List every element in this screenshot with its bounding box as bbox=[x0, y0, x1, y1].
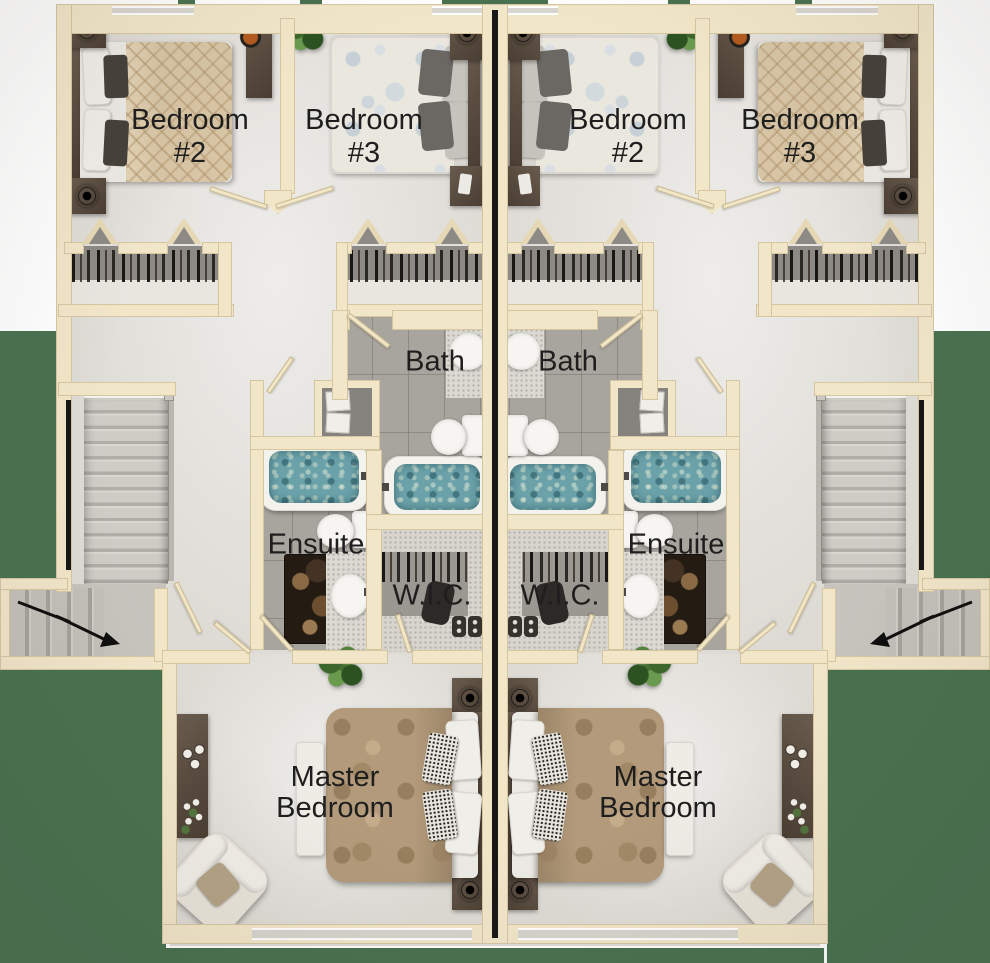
lamp-icon bbox=[78, 187, 96, 205]
ensuite-wall bbox=[250, 436, 380, 450]
closet-wall bbox=[58, 304, 234, 317]
toilet-bowl bbox=[431, 419, 466, 455]
accent-pillow-dark bbox=[418, 48, 455, 97]
exterior-wall bbox=[0, 656, 172, 670]
closet-shelf bbox=[70, 280, 218, 306]
stairwell-wall bbox=[58, 382, 176, 396]
sink bbox=[621, 574, 659, 618]
stair-direction-arrow bbox=[14, 592, 124, 656]
stair-railing bbox=[816, 393, 822, 581]
phone bbox=[518, 173, 533, 194]
master-wall bbox=[292, 650, 388, 664]
towels bbox=[325, 412, 350, 433]
ensuite-wall bbox=[610, 436, 740, 450]
bath-wall bbox=[332, 310, 348, 400]
closet-wall bbox=[906, 242, 926, 254]
room-label-bedroom3: Bedroom#3 bbox=[741, 104, 859, 170]
patio-window bbox=[252, 928, 472, 940]
shoes bbox=[452, 616, 466, 637]
flower-vase bbox=[178, 794, 208, 836]
closet-clothes bbox=[500, 250, 640, 282]
lamp-icon bbox=[461, 689, 479, 707]
bedroom-divider-wall bbox=[280, 18, 295, 194]
bedroom-divider-wall bbox=[695, 18, 710, 194]
nightstand bbox=[450, 166, 484, 206]
bath-wall bbox=[495, 310, 598, 330]
shoes bbox=[468, 616, 482, 637]
lamp-icon bbox=[461, 881, 479, 899]
lamp-icon bbox=[511, 881, 529, 899]
closet-wall bbox=[758, 242, 772, 317]
staircase bbox=[84, 396, 168, 584]
room-label-bath: Bath bbox=[405, 346, 465, 379]
wic-clothes bbox=[382, 552, 468, 582]
party-wall-line bbox=[492, 10, 498, 938]
flower-vase bbox=[782, 794, 812, 836]
bath-wic-wall bbox=[366, 514, 495, 530]
exterior-wall bbox=[818, 656, 990, 670]
room-label-ensuite: Ensuite bbox=[628, 529, 725, 562]
room-label-wic: W.I.C. bbox=[521, 580, 600, 613]
master-wall bbox=[740, 650, 828, 664]
staircase bbox=[822, 396, 906, 584]
bath-wall bbox=[642, 310, 658, 400]
ensuite-wall bbox=[726, 380, 740, 650]
wic-clothes bbox=[522, 552, 608, 582]
nightstand bbox=[506, 166, 540, 206]
room-label-wic: W.I.C. bbox=[393, 580, 472, 613]
bath-wic-wall bbox=[495, 514, 624, 530]
closet-wall bbox=[554, 242, 604, 254]
ensuite-wall bbox=[250, 380, 264, 650]
lamp-icon bbox=[511, 689, 529, 707]
accent-pillow bbox=[103, 119, 129, 166]
bath-wall bbox=[392, 310, 495, 330]
accent-pillow bbox=[861, 119, 887, 166]
stair-railing bbox=[168, 393, 174, 581]
candles bbox=[180, 744, 210, 772]
accent-pillow bbox=[103, 55, 128, 99]
patio-window bbox=[518, 928, 738, 940]
shoes bbox=[508, 616, 522, 637]
accent-pillow bbox=[861, 55, 886, 99]
exterior-wall bbox=[0, 578, 68, 590]
closet-wall bbox=[218, 242, 232, 317]
closet-wall bbox=[642, 242, 654, 317]
stair-direction-arrow bbox=[866, 592, 976, 656]
room-label-bedroom2: Bedroom#2 bbox=[569, 104, 687, 170]
ensuite-wic-wall bbox=[366, 450, 382, 650]
closet-clothes bbox=[774, 250, 918, 282]
towels bbox=[639, 412, 664, 433]
room-label-master: MasterBedroom bbox=[599, 762, 717, 824]
floor-plan: Bedroom#2 Bedroom#3 Bedroom#2 Bedroom#3 … bbox=[0, 0, 990, 963]
lamp-icon bbox=[894, 187, 912, 205]
phone bbox=[458, 173, 473, 194]
master-wall bbox=[602, 650, 698, 664]
bathtub-water bbox=[394, 464, 480, 510]
candles bbox=[780, 744, 810, 772]
ensuite-wic-wall bbox=[608, 450, 624, 650]
closet-clothes bbox=[350, 250, 490, 282]
sink bbox=[331, 574, 369, 618]
nightstand bbox=[884, 178, 922, 214]
window bbox=[112, 6, 194, 15]
closet-wall bbox=[64, 242, 84, 254]
closet-wall bbox=[822, 242, 872, 254]
bathtub-water bbox=[269, 451, 359, 503]
exterior-wall bbox=[922, 578, 990, 590]
closet-clothes bbox=[72, 250, 216, 282]
exterior-wall bbox=[813, 654, 828, 944]
closet-shelf bbox=[772, 280, 920, 306]
closet-wall bbox=[118, 242, 168, 254]
accent-pillow-dark bbox=[536, 100, 573, 151]
accent-pillow-dark bbox=[418, 100, 455, 151]
closet-shelf bbox=[496, 280, 642, 306]
closet-wall bbox=[336, 242, 348, 317]
toilet-bowl bbox=[524, 419, 559, 455]
bathtub-water bbox=[510, 464, 596, 510]
exterior-wall bbox=[162, 654, 177, 944]
closet-shelf bbox=[348, 280, 494, 306]
room-label-bedroom2: Bedroom#2 bbox=[131, 104, 249, 170]
nightstand bbox=[68, 178, 106, 214]
bathtub-water bbox=[631, 451, 721, 503]
closet-wall bbox=[386, 242, 436, 254]
room-label-master: MasterBedroom bbox=[276, 762, 394, 824]
sink bbox=[503, 333, 540, 370]
room-label-bath: Bath bbox=[538, 346, 598, 379]
window bbox=[796, 6, 878, 15]
window bbox=[919, 400, 924, 570]
room-label-ensuite: Ensuite bbox=[268, 529, 365, 562]
stairwell-wall bbox=[814, 382, 932, 396]
window bbox=[66, 400, 71, 570]
master-wall bbox=[162, 650, 250, 664]
room-label-bedroom3: Bedroom#3 bbox=[305, 104, 423, 170]
shoes bbox=[524, 616, 538, 637]
closet-wall bbox=[756, 304, 932, 317]
accent-pillow-dark bbox=[536, 48, 573, 97]
